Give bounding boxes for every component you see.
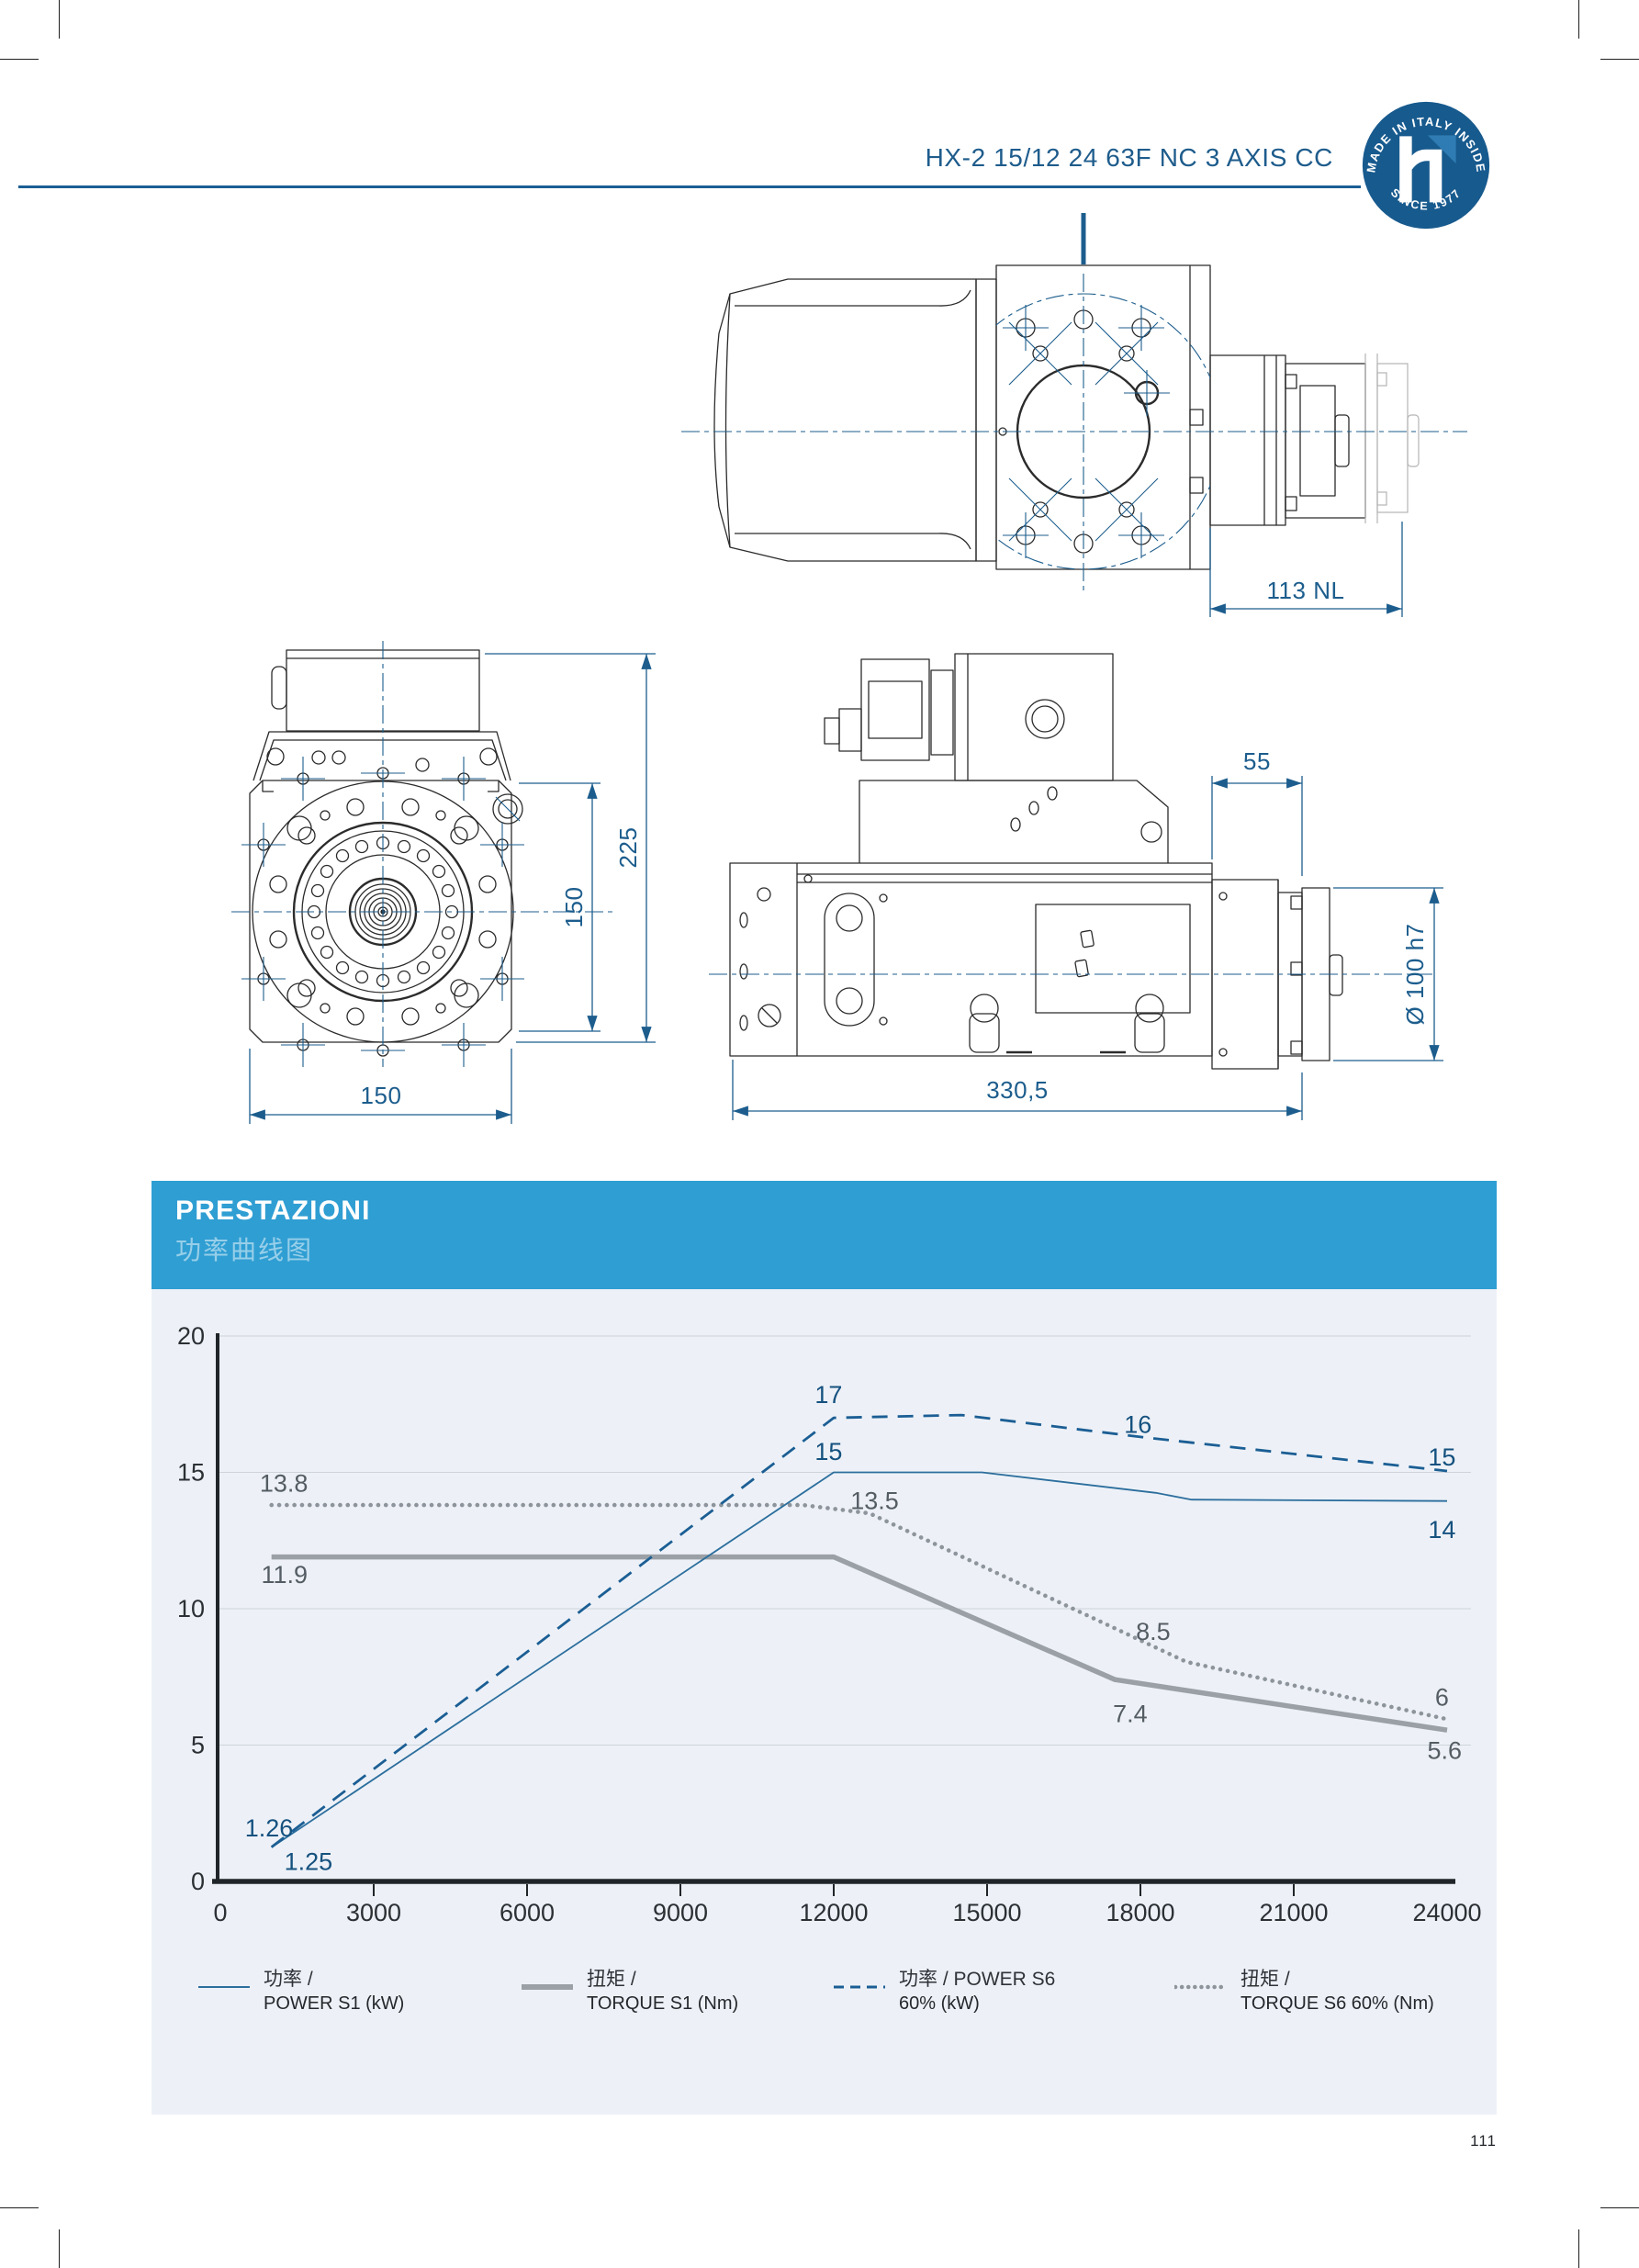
data-label: 14: [1428, 1516, 1455, 1544]
top-view-centerlines: [681, 213, 1467, 595]
y-tick-label: 20: [177, 1322, 205, 1350]
panel-subtitle: 功率曲线图: [175, 1230, 313, 1267]
series-dashed: [272, 1415, 1447, 1847]
dim-225: 225: [485, 654, 656, 1042]
series-solid_thick: [272, 1557, 1447, 1731]
legend-label: 功率 /POWER S1 (kW): [264, 1967, 404, 2015]
crop-mark: [1578, 2229, 1579, 2268]
dim-330-label: 330,5: [986, 1076, 1049, 1104]
legend-label-line2: TORQUE S1 (Nm): [587, 1992, 738, 2015]
crop-mark: [1600, 2207, 1639, 2208]
dim-150-vertical: 150: [519, 783, 601, 1031]
dim-150v-label: 150: [560, 887, 588, 928]
x-tick-label: 6000: [500, 1899, 555, 1926]
front-view-centerlines: [231, 641, 613, 1067]
legend-swatch-dotted: [1174, 1975, 1228, 1999]
dim-113nl-label: 113 NL: [1267, 577, 1345, 604]
front-view-drawing: 225 150 150: [231, 641, 656, 1124]
chart-legend: 功率 /POWER S1 (kW)扭矩 /TORQUE S1 (Nm)功率 / …: [152, 1967, 1497, 2068]
crop-mark: [1578, 0, 1579, 39]
data-label: 1.26: [245, 1814, 294, 1842]
dim-diameter-label: Ø 100 h7: [1401, 924, 1429, 1026]
side-view-drawing: 55 Ø 100 h7 330,5: [709, 654, 1443, 1120]
dim-55: 55: [1212, 747, 1302, 876]
legend-item: 功率 /POWER S1 (kW): [197, 1967, 404, 2015]
legend-label: 扭矩 /TORQUE S6 60% (Nm): [1240, 1967, 1434, 2015]
legend-label-line1: 功率 / POWER S6: [899, 1967, 1055, 1992]
legend-item: 扭矩 /TORQUE S6 60% (Nm): [1174, 1967, 1434, 2015]
data-label: 1.25: [285, 1848, 333, 1876]
dim-150h-label: 150: [361, 1082, 402, 1109]
x-tick-label: 21000: [1259, 1899, 1328, 1926]
dim-55-label: 55: [1243, 747, 1271, 775]
data-label: 6: [1435, 1684, 1449, 1712]
legend-label-line2: TORQUE S6 60% (Nm): [1240, 1992, 1434, 2015]
data-label: 15: [1428, 1443, 1455, 1471]
x-tick-label: 18000: [1106, 1899, 1174, 1926]
legend-label: 功率 / POWER S660% (kW): [899, 1967, 1055, 2015]
panel-header-band: PRESTAZIONI 功率曲线图: [152, 1181, 1497, 1289]
top-view-drawing: 113 NL: [681, 213, 1467, 617]
legend-item: 扭矩 /TORQUE S1 (Nm): [521, 1967, 738, 2015]
crop-mark: [0, 2207, 39, 2208]
legend-label-line1: 扭矩 /: [587, 1967, 738, 1992]
x-tick-label: 3000: [346, 1899, 401, 1926]
crop-mark: [59, 2229, 60, 2268]
data-label: 13.5: [850, 1488, 899, 1515]
phantom-extension: [1365, 354, 1419, 523]
legend-label-line2: POWER S1 (kW): [264, 1992, 404, 2015]
legend-swatch-dashed: [833, 1975, 886, 1999]
page-number: 111: [1432, 2132, 1497, 2150]
panel-title: PRESTAZIONI: [175, 1196, 371, 1227]
dim-225-label: 225: [614, 827, 642, 869]
crop-mark: [0, 59, 39, 60]
y-tick-label: 5: [191, 1732, 205, 1759]
x-tick-label: 12000: [799, 1899, 868, 1926]
data-label: 17: [814, 1381, 842, 1409]
data-label: 15: [814, 1438, 842, 1465]
y-tick-label: 10: [177, 1595, 205, 1622]
series-dotted: [272, 1505, 1447, 1719]
x-tick-label: 24000: [1412, 1899, 1481, 1926]
dim-150-horizontal: 150: [250, 1049, 511, 1124]
legend-swatch-solid_thick: [521, 1975, 574, 1999]
crop-mark: [59, 0, 60, 39]
header-rule: [18, 185, 1361, 188]
y-tick-label: 15: [177, 1459, 205, 1487]
dim-113nl: 113 NL: [1210, 522, 1402, 617]
data-label: 11.9: [262, 1561, 309, 1589]
legend-item: 功率 / POWER S660% (kW): [833, 1967, 1055, 2015]
legend-label-line2: 60% (kW): [899, 1992, 1055, 2015]
x-tick-label: 0: [213, 1899, 227, 1926]
data-label: 5.6: [1427, 1736, 1462, 1764]
technical-drawings: 113 NL: [138, 202, 1515, 1166]
data-label: 13.8: [260, 1469, 309, 1497]
legend-label-line1: 扭矩 /: [1240, 1967, 1434, 1992]
series-solid_thin: [272, 1473, 1447, 1847]
performance-panel: PRESTAZIONI 功率曲线图 0510152003000600090001…: [152, 1181, 1497, 2115]
data-label: 7.4: [1113, 1700, 1148, 1727]
crop-mark: [1600, 59, 1639, 60]
legend-swatch-solid_thin: [197, 1975, 251, 1999]
data-label: 8.5: [1136, 1618, 1171, 1645]
legend-label: 扭矩 /TORQUE S1 (Nm): [587, 1967, 738, 2015]
x-tick-label: 15000: [952, 1899, 1021, 1926]
datasheet-page: HX-2 15/12 24 63F NC 3 AXIS CC MADE IN I…: [0, 0, 1639, 2268]
legend-label-line1: 功率 /: [264, 1967, 404, 1992]
data-label: 16: [1124, 1411, 1151, 1439]
page-title: HX-2 15/12 24 63F NC 3 AXIS CC: [826, 143, 1333, 173]
x-tick-label: 9000: [653, 1899, 708, 1926]
y-tick-label: 0: [191, 1868, 205, 1895]
